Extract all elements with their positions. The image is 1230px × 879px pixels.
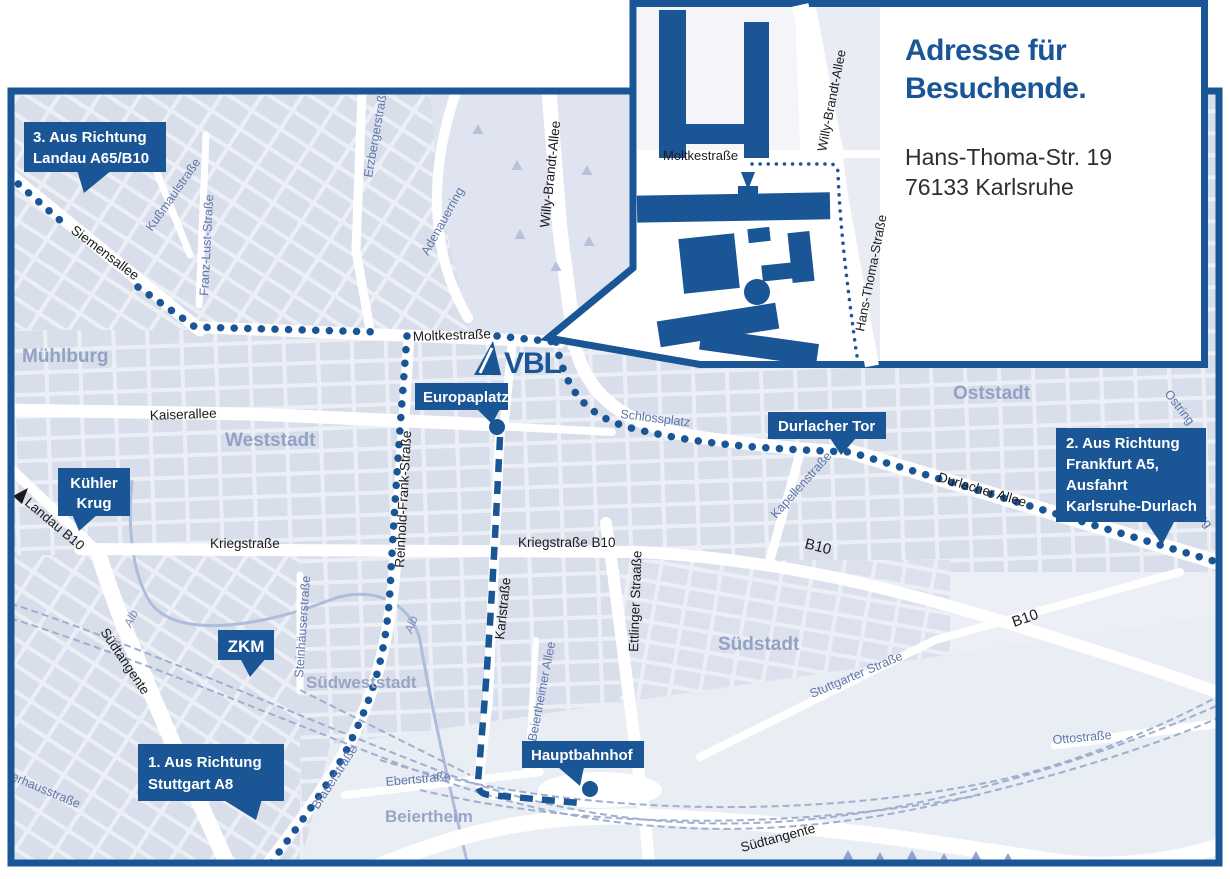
- building-small: [747, 227, 770, 243]
- inset-title-line1: Adresse für: [905, 34, 1067, 67]
- label-moltkestrasse: Moltkestraße: [413, 326, 492, 344]
- callout-kuehler-krug-line1: Kühler: [70, 475, 118, 492]
- label-muehlburg: Mühlburg: [22, 346, 109, 367]
- inset-title-line2: Besuchende.: [905, 72, 1086, 105]
- label-suedstadt: Südstadt: [718, 634, 800, 655]
- callout-durlacher-tor-label: Durlacher Tor: [778, 418, 875, 435]
- label-kaiserallee: Kaiserallee: [150, 406, 217, 423]
- inset-street-moltke: [637, 168, 812, 172]
- label-weststadt: Weststadt: [225, 430, 316, 451]
- label-suedweststadt: Südweststadt: [306, 673, 417, 692]
- callout-route3-line2: Landau A65/B10: [33, 150, 149, 167]
- callout-route1-line2: Stuttgart A8: [148, 776, 233, 793]
- building-long-bar: [637, 192, 830, 222]
- callout-europaplatz-label: Europaplatz: [423, 389, 509, 406]
- building-bar-right: [744, 22, 769, 158]
- callout-route2-line2: Frankfurt A5,: [1066, 456, 1159, 473]
- callout-route3-line1: 3. Aus Richtung: [33, 129, 147, 146]
- building-piece: [761, 262, 793, 281]
- callout-zkm-label: ZKM: [228, 637, 265, 656]
- callout-hauptbahnhof-label: Hauptbahnhof: [531, 747, 634, 764]
- callout-route1-line1: 1. Aus Richtung: [148, 754, 262, 771]
- inset-label-moltkestrasse: Moltkestraße: [663, 148, 738, 163]
- vbl-logo-text: VBL: [504, 347, 562, 380]
- inset-address-line1: Hans-Thoma-Str. 19: [905, 144, 1112, 170]
- building-dome: [744, 279, 770, 305]
- callout-route2-line1: 2. Aus Richtung: [1066, 435, 1180, 452]
- callout-route2-line3: Ausfahrt: [1066, 477, 1128, 494]
- label-beiertheim: Beiertheim: [385, 807, 473, 826]
- label-kriegstrasse: Kriegstraße: [210, 536, 280, 551]
- building-crossbar: [686, 124, 744, 144]
- callout-kuehler-krug-line2: Krug: [77, 495, 112, 512]
- inset-panel: Moltkestraße Willy-Brandt-Allee Hans-Tho…: [548, 4, 1205, 367]
- inset-address-line2: 76133 Karlsruhe: [905, 174, 1074, 200]
- city-map-page: Siemensallee Kußmaulstraße Franz-Lust-St…: [0, 0, 1230, 874]
- callout-route2-line4: Karlsruhe-Durlach: [1066, 498, 1197, 515]
- building-square: [678, 233, 739, 294]
- building-bar-left: [659, 10, 686, 158]
- label-kriegstrasse-b10: Kriegstraße B10: [518, 535, 616, 550]
- map-canvas: Siemensallee Kußmaulstraße Franz-Lust-St…: [0, 0, 1230, 874]
- label-oststadt: Oststadt: [953, 383, 1031, 404]
- hauptbahnhof-dot: [582, 781, 598, 797]
- hauptbahnhof-plaza: [538, 772, 662, 808]
